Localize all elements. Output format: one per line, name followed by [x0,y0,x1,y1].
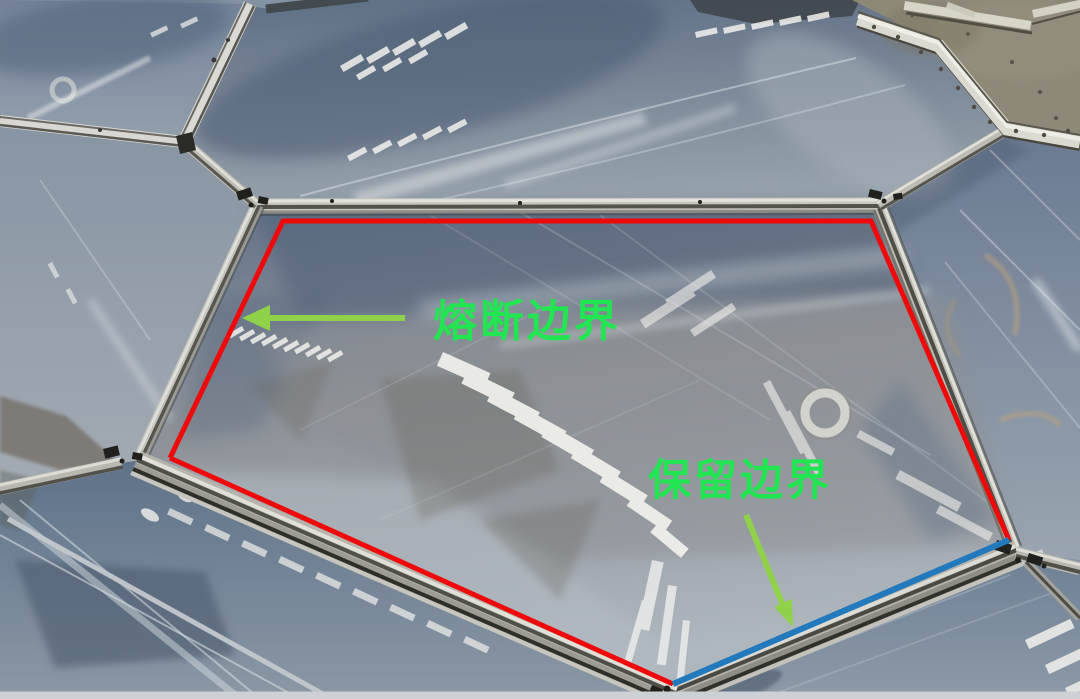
fuse-boundary-label: 熔断边界 [433,296,621,347]
annotated-photo-frame: 熔断边界 保留边界 [0,0,1080,699]
keep-boundary-label: 保留边界 [648,456,832,506]
photo-bottom-strip [0,692,1080,699]
annotated-photo: 熔断边界 保留边界 [0,0,1080,699]
